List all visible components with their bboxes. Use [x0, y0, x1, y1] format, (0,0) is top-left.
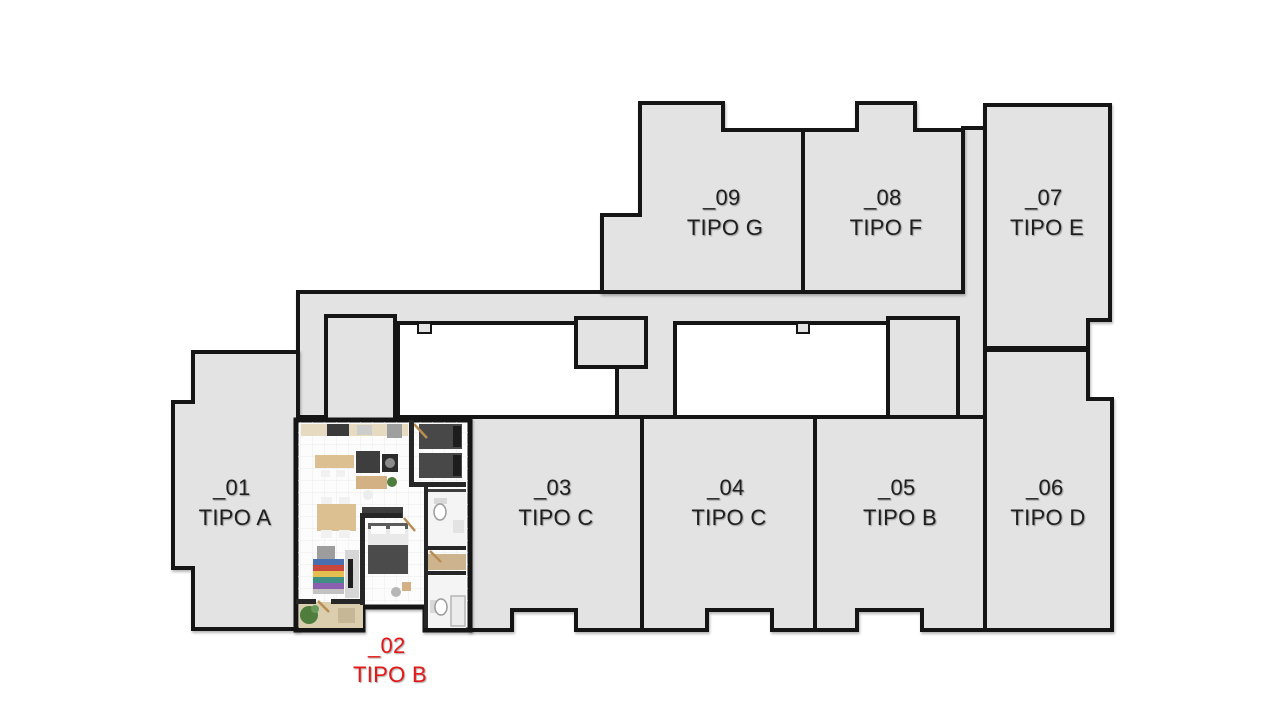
unit-tipo: TIPO C [691, 505, 766, 530]
dining-table [317, 504, 356, 531]
unit-number: _09 [702, 185, 741, 210]
desk-chair [363, 490, 373, 500]
core-mid [576, 318, 646, 367]
rug-stripe-3 [313, 571, 344, 577]
floor-plan: _01 TIPO A _02 TIPO B _03 TIPO C _04 TIP… [0, 0, 1280, 720]
island-counter [315, 455, 354, 468]
rug-stripe-6 [313, 589, 344, 594]
master-pillow-2 [390, 526, 405, 534]
unit-tipo: TIPO B [353, 662, 427, 687]
stove [327, 424, 349, 436]
unit-tipo: TIPO B [863, 505, 937, 530]
fridge [387, 424, 402, 438]
unit-number: _06 [1025, 475, 1064, 500]
unit-tipo: TIPO C [518, 505, 593, 530]
bath-1-sink [453, 520, 464, 533]
rug-stripe-1 [313, 559, 344, 565]
rug-stripe-4 [313, 577, 344, 583]
pouf [391, 587, 401, 597]
core-left [326, 316, 395, 420]
master-pillow-1 [371, 526, 386, 534]
unit-tipo: TIPO E [1010, 215, 1084, 240]
unit-number: _01 [212, 475, 251, 500]
balcony-mat [338, 608, 355, 623]
desk-plant [387, 477, 397, 487]
dark-cabinet [356, 451, 380, 473]
unit-number: _07 [1024, 185, 1063, 210]
interior-wall-9 [331, 599, 364, 604]
unit-number: _04 [706, 475, 745, 500]
courtyard-left-stub [418, 323, 431, 333]
kitchen-sink [357, 425, 372, 435]
core-right [888, 318, 958, 426]
side-table [402, 582, 411, 591]
toilet-1 [434, 504, 446, 520]
stool-2 [336, 470, 345, 477]
courtyard-right [675, 323, 888, 417]
toilet-1-tank [434, 498, 447, 504]
interior-wall-1 [409, 420, 414, 484]
unit-tipo: TIPO D [1010, 505, 1085, 530]
interior-wall-7 [360, 513, 365, 605]
rug-stripe-2 [313, 565, 344, 571]
unit-tipo: TIPO F [850, 215, 923, 240]
desk [356, 476, 387, 489]
interior-wall-6 [360, 513, 402, 518]
rug-stripe-5 [313, 583, 344, 589]
unit-number: _03 [533, 475, 572, 500]
shower [451, 596, 465, 626]
interior-wall-2 [409, 482, 466, 487]
unit-tipo: TIPO G [687, 215, 763, 240]
oven-door [385, 458, 395, 468]
unit-number: _08 [863, 185, 902, 210]
unit-number: _05 [877, 475, 916, 500]
balcony-plant-top [311, 605, 319, 613]
toilet-2 [435, 599, 447, 615]
dining-chair-4 [339, 530, 350, 538]
unit-label-02-selected: _02 TIPO B [353, 633, 427, 687]
unit-number: _02 [367, 633, 406, 658]
dining-chair-1 [321, 497, 332, 505]
floor-plan-canvas: _01 TIPO A _02 TIPO B _03 TIPO C _04 TIP… [0, 0, 1280, 720]
armchair [317, 546, 335, 559]
courtyard-right-stub [797, 323, 809, 333]
unit-tipo: TIPO A [199, 505, 272, 530]
interior-wall-5 [424, 571, 466, 575]
twin-bed-2-pillow [453, 455, 461, 476]
interior-wall-3 [424, 487, 428, 628]
tv [348, 559, 353, 588]
unit-02-detail [296, 420, 470, 630]
dining-chair-3 [321, 530, 332, 538]
interior-wall-8 [296, 599, 316, 604]
dining-chair-2 [339, 497, 350, 505]
master-duvet [368, 545, 408, 574]
twin-bed-1-pillow [453, 426, 461, 447]
interior-wall-4 [424, 546, 466, 550]
stool-1 [321, 470, 330, 477]
